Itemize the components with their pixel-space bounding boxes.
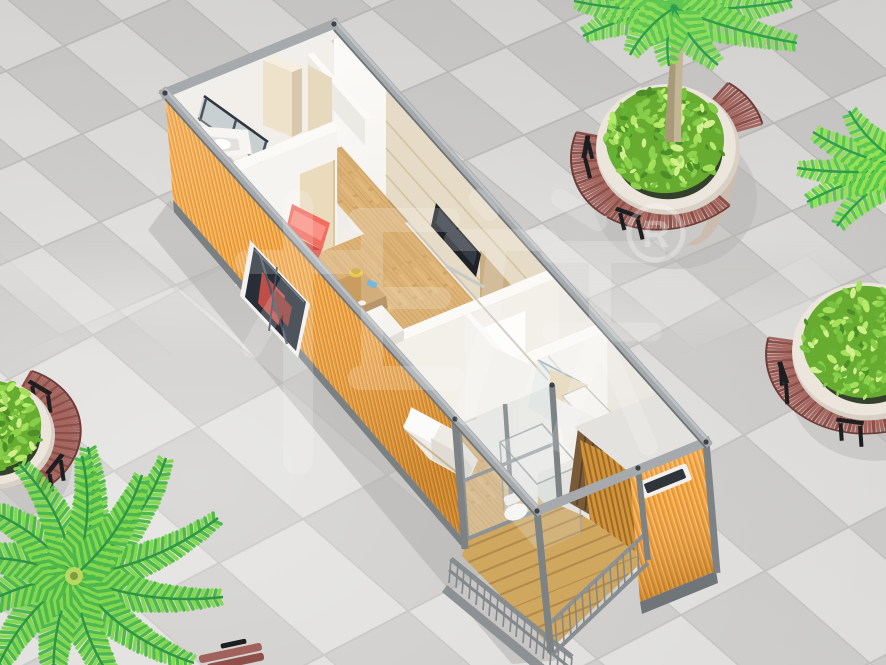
svg-text:R: R xyxy=(642,214,669,256)
